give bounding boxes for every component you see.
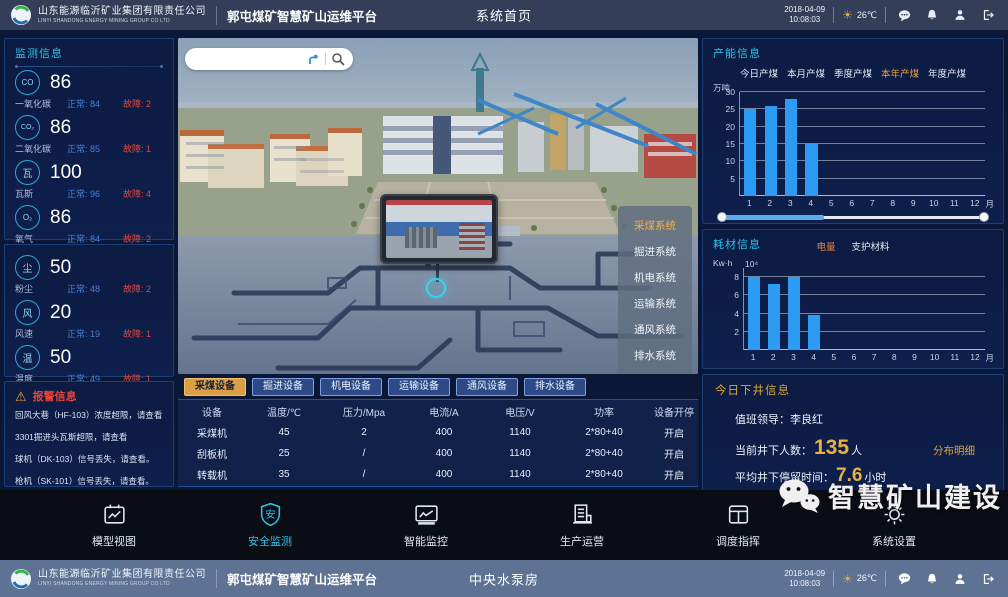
tab-year-coal[interactable]: 本年产煤 <box>881 66 919 80</box>
camera-preview-popup[interactable] <box>380 194 498 264</box>
platform-title: 郭屯煤矿智慧矿山运维平台 <box>216 569 377 588</box>
y-tick: 2 <box>734 327 739 337</box>
production-chart: 万吨 5 10 15 20 25 30 <box>713 92 993 223</box>
sensor-oxygen: O₂86 氧气正常: 84故障: 2 <box>15 203 163 248</box>
cell: 45 <box>246 427 322 438</box>
dust-icon: 尘 <box>15 255 40 280</box>
bar-series <box>740 92 985 196</box>
underground-count-line: 当前井下人数： 135 人 分布明细 <box>715 436 991 460</box>
sensor-normal: 正常: 84 <box>67 97 123 110</box>
time-text: 10:08:03 <box>784 15 825 25</box>
table-row[interactable]: 采煤机45240011402*80+40开启 <box>178 422 698 443</box>
bottom-info-bar: 山东能源临沂矿业集团有限责任公司 LINYI SHANDONG ENERGY M… <box>0 560 1008 597</box>
chart-zoom-slider[interactable] <box>717 212 989 223</box>
sensor-value: 86 <box>50 72 71 94</box>
table-row[interactable]: 刮板机25/40011402*80+40开启 <box>178 443 698 464</box>
sensor-normal: 正常: 96 <box>67 187 123 200</box>
menu-item-electromechanical-system[interactable]: 机电系统 <box>618 265 692 291</box>
company-name: 山东能源临沂矿业集团有限责任公司 <box>38 570 206 580</box>
company-logo-icon <box>10 4 32 26</box>
bell-icon[interactable] <box>922 571 942 587</box>
menu-item-tunneling-system[interactable]: 掘进系统 <box>618 239 692 265</box>
alarm-panel: ⚠ 报警信息 回风大巷（HF-103）浓度超限，请查看 3301掘进头瓦斯超限，… <box>4 381 174 487</box>
date-text: 2018-04-09 <box>784 569 825 579</box>
sensor-fault: 故障: 4 <box>123 187 151 200</box>
equipment-tabs: 采煤设备 掘进设备 机电设备 运输设备 通风设备 排水设备 <box>178 378 698 396</box>
legend-support-material[interactable]: 支护材料 <box>852 239 890 253</box>
temperature-icon: 温 <box>15 345 40 370</box>
oxygen-icon: O₂ <box>15 205 40 230</box>
nav-dispatch-command[interactable]: 调度指挥 <box>696 501 780 549</box>
tab-transport-equipment[interactable]: 运输设备 <box>388 378 450 396</box>
left-sidebar: 监测信息 CO86 一氧化碳正常: 84故障: 2 CO₂86 二氧化碳正常: … <box>4 38 174 487</box>
sun-icon: ☀ <box>842 9 853 21</box>
sensor-fault: 故障: 2 <box>123 97 151 110</box>
cell: 25 <box>246 448 322 459</box>
bar-month-4 <box>808 315 820 350</box>
platform-title: 郭屯煤矿智慧矿山运维平台 <box>216 6 377 25</box>
x-axis-ticks: 123456789101112 月 <box>743 352 985 362</box>
company-block: 山东能源临沂矿业集团有限责任公司 LINYI SHANDONG ENERGY M… <box>38 570 206 587</box>
company-logo-icon <box>10 568 32 590</box>
menu-item-transport-system[interactable]: 运输系统 <box>618 291 692 317</box>
company-block: 山东能源临沂矿业集团有限责任公司 LINYI SHANDONG ENERGY M… <box>38 7 206 24</box>
time-text: 10:08:03 <box>784 579 825 589</box>
wechat-icon <box>777 477 821 515</box>
monitoring-title: 监测信息 <box>15 45 163 61</box>
search-input[interactable] <box>193 53 301 66</box>
sensor-gas: 瓦100 瓦斯正常: 96故障: 4 <box>15 158 163 203</box>
temperature-text: 26℃ <box>857 10 877 21</box>
x-axis-ticks: 123456789101112 月 <box>739 198 985 208</box>
pump-room-photo <box>386 200 492 258</box>
tab-month-coal[interactable]: 本月产煤 <box>787 66 825 80</box>
cell: / <box>322 469 406 480</box>
alarm-item[interactable]: 回风大巷（HF-103）浓度超限，请查看 <box>15 404 163 426</box>
page-title: 系统首页 <box>476 6 532 25</box>
weather-widget: ☀ 26℃ <box>842 573 877 585</box>
sensor-normal: 正常: 48 <box>67 282 123 295</box>
menu-item-coal-mining-system[interactable]: 采煤系统 <box>618 213 692 239</box>
sensor-dust: 尘50 粉尘正常: 48故障: 2 <box>15 253 163 298</box>
divider <box>885 7 886 23</box>
tab-today-coal[interactable]: 今日产煤 <box>740 66 778 80</box>
nav-model-view[interactable]: 模型视图 <box>72 501 156 549</box>
cell: 转载机 <box>178 467 246 482</box>
magnifier-icon[interactable] <box>331 52 345 66</box>
header-right: 2018-04-09 10:08:03 ☀ 26℃ <box>784 5 998 25</box>
consumables-chart: Kw·h 10⁴ 2 4 6 8 <box>713 268 993 362</box>
bar-month-1 <box>744 109 756 196</box>
message-icon[interactable] <box>894 7 914 23</box>
footer-right: 2018-04-09 10:08:03 ☀ 26℃ <box>784 569 998 589</box>
gas-icon: 瓦 <box>15 160 40 185</box>
bar-month-4 <box>805 144 817 196</box>
cell: 2*80+40 <box>558 469 650 480</box>
company-name-en: LINYI SHANDONG ENERGY MINING GROUP CO LT… <box>38 19 206 24</box>
center-column: 采煤系统 掘进系统 机电系统 运输系统 通风系统 排水系统 采煤设 <box>178 38 698 487</box>
current-location-title: 中央水泵房 <box>469 569 539 588</box>
tab-tunneling-equipment[interactable]: 掘进设备 <box>252 378 314 396</box>
sensor-value: 100 <box>50 162 82 184</box>
sensor-wind-speed: 风20 风速正常: 19故障: 1 <box>15 298 163 343</box>
dispatch-command-icon <box>725 501 752 528</box>
col-header: 电流/A <box>406 404 482 419</box>
logout-icon[interactable] <box>978 7 998 23</box>
y-tick: 15 <box>726 139 735 149</box>
divider <box>885 571 886 587</box>
logout-icon[interactable] <box>978 571 998 587</box>
y-tick: 25 <box>726 104 735 114</box>
tab-annual-coal[interactable]: 年度产煤 <box>928 66 966 80</box>
divider <box>325 53 326 65</box>
warning-triangle-icon: ⚠ <box>15 390 27 403</box>
svg-text:安: 安 <box>265 508 275 521</box>
right-sidebar: 产能信息 今日产煤 本月产煤 季度产煤 本年产煤 年度产煤 万吨 <box>702 38 1004 487</box>
col-header: 功率 <box>558 404 650 419</box>
y-tick: 8 <box>734 272 739 282</box>
cell: 开启 <box>650 467 698 482</box>
sensor-label: 粉尘 <box>15 282 67 295</box>
sensor-value: 50 <box>50 257 71 279</box>
production-operation-icon <box>569 501 596 528</box>
table-header-row: 设备 温度/℃ 压力/Mpa 电流/A 电压/V 功率 设备开停 <box>178 400 698 422</box>
sensor-label: 风速 <box>15 327 67 340</box>
sensor-label: 一氧化碳 <box>15 97 67 110</box>
sensor-fault: 故障: 1 <box>123 327 151 340</box>
cell: 开启 <box>650 446 698 461</box>
consumables-legend: 电量 支护材料 <box>703 239 1003 253</box>
duty-leader-label: 值班领导： <box>735 411 790 427</box>
col-header: 设备开停 <box>650 404 698 419</box>
tab-drainage-equipment[interactable]: 排水设备 <box>524 378 586 396</box>
cell: 开启 <box>650 425 698 440</box>
alarm-item[interactable]: 球机（DK-103）信号丢失，请查看。 <box>15 448 163 470</box>
y-tick: 4 <box>734 309 739 319</box>
col-header: 压力/Mpa <box>322 404 406 419</box>
cell: 400 <box>406 427 482 438</box>
sensor-value: 20 <box>50 302 71 324</box>
cell: 2*80+40 <box>558 427 650 438</box>
table-row[interactable]: 转载机35/40011402*80+40开启 <box>178 464 698 485</box>
cell: 采煤机 <box>178 425 246 440</box>
sensor-fault: 故障: 2 <box>123 282 151 295</box>
underground-title: 今日下井信息 <box>715 382 991 398</box>
cell: 400 <box>406 469 482 480</box>
nav-safety-monitoring[interactable]: 安 安全监测 <box>228 501 312 549</box>
company-name: 山东能源临沂矿业集团有限责任公司 <box>38 7 206 17</box>
bar-month-3 <box>788 277 800 350</box>
scene-searchbox <box>185 48 353 70</box>
cell: / <box>322 448 406 459</box>
datetime: 2018-04-09 10:08:03 <box>784 5 825 25</box>
sensor-normal: 正常: 85 <box>67 142 123 155</box>
nav-label: 安全监测 <box>248 533 292 549</box>
divider <box>833 571 834 587</box>
nav-label: 智能监控 <box>404 533 448 549</box>
top-header: 山东能源临沂矿业集团有限责任公司 LINYI SHANDONG ENERGY M… <box>0 0 1008 30</box>
y-tick: 30 <box>726 87 735 97</box>
nav-production-operation[interactable]: 生产运营 <box>540 501 624 549</box>
monitoring-panel: 监测信息 CO86 一氧化碳正常: 84故障: 2 CO₂86 二氧化碳正常: … <box>4 38 174 240</box>
systems-menu: 采煤系统 掘进系统 机电系统 运输系统 通风系统 排水系统 <box>618 206 692 374</box>
tab-quarter-coal[interactable]: 季度产煤 <box>834 66 872 80</box>
tab-ventilation-equipment[interactable]: 通风设备 <box>456 378 518 396</box>
slider-handle-right[interactable] <box>979 212 989 222</box>
x-axis-unit: 月 <box>985 352 994 364</box>
production-panel: 产能信息 今日产煤 本月产煤 季度产煤 本年产煤 年度产煤 万吨 <box>702 38 1004 224</box>
sensor-label: 瓦斯 <box>15 187 67 200</box>
col-header: 温度/℃ <box>246 404 322 419</box>
y-tick: 20 <box>726 122 735 132</box>
col-header: 电压/V <box>482 404 558 419</box>
duty-leader-name: 李良红 <box>790 411 823 427</box>
col-header: 设备 <box>178 404 246 419</box>
x-axis-unit: 月 <box>985 198 994 210</box>
cell: 400 <box>406 448 482 459</box>
sensor-value: 50 <box>50 347 71 369</box>
mine-3d-scene[interactable]: 采煤系统 掘进系统 机电系统 运输系统 通风系统 排水系统 <box>178 38 698 374</box>
production-title: 产能信息 <box>713 45 993 61</box>
nav-smart-surveillance[interactable]: 智能监控 <box>384 501 468 549</box>
main-area: 监测信息 CO86 一氧化碳正常: 84故障: 2 CO₂86 二氧化碳正常: … <box>0 30 1008 490</box>
alarm-item[interactable]: 枪机（SK-101）信号丢失，请查看。 <box>15 470 163 487</box>
count-label: 当前井下人数： <box>735 442 812 458</box>
locate-icon[interactable] <box>306 52 320 66</box>
carbon-dioxide-icon: CO₂ <box>15 115 40 140</box>
alarm-title: 报警信息 <box>33 388 77 404</box>
consumables-panel: 耗材信息 电量 支护材料 Kw·h 10⁴ 2 4 <box>702 229 1004 369</box>
divider <box>833 7 834 23</box>
nav-label: 调度指挥 <box>716 533 760 549</box>
production-tabs: 今日产煤 本月产煤 季度产煤 本年产煤 年度产煤 <box>713 66 993 80</box>
equipment-table: 设备 温度/℃ 压力/Mpa 电流/A 电压/V 功率 设备开停 采煤机4524… <box>178 399 698 487</box>
bar-month-3 <box>785 99 797 196</box>
monitoring-panel-2: 尘50 粉尘正常: 48故障: 2 风20 风速正常: 19故障: 1 温50 … <box>4 244 174 377</box>
safety-monitor-icon: 安 <box>257 501 284 528</box>
nav-label: 系统设置 <box>872 533 916 549</box>
cell: 35 <box>246 469 322 480</box>
bar-month-2 <box>765 106 777 196</box>
sun-icon: ☀ <box>842 573 853 585</box>
sensor-normal: 正常: 19 <box>67 327 123 340</box>
wind-icon: 风 <box>15 300 40 325</box>
cell: 1140 <box>482 469 558 480</box>
y-axis-unit: Kw·h <box>713 258 732 268</box>
cell: 1140 <box>482 427 558 438</box>
tab-coal-mining-equipment[interactable]: 采煤设备 <box>184 378 246 396</box>
weather-widget: ☀ 26℃ <box>842 9 877 21</box>
title-separator <box>15 66 163 67</box>
menu-item-ventilation-system[interactable]: 通风系统 <box>618 317 692 343</box>
bar-month-2 <box>768 284 780 350</box>
slider-selection <box>721 215 824 220</box>
nav-label: 生产运营 <box>560 533 604 549</box>
tab-electromechanical-equipment[interactable]: 机电设备 <box>320 378 382 396</box>
menu-item-drainage-system[interactable]: 排水系统 <box>618 343 692 369</box>
sensor-carbon-monoxide: CO86 一氧化碳正常: 84故障: 2 <box>15 68 163 113</box>
pump-machines <box>405 227 437 248</box>
bell-icon[interactable] <box>922 7 942 23</box>
app-root: 山东能源临沂矿业集团有限责任公司 LINYI SHANDONG ENERGY M… <box>0 0 1008 597</box>
sensor-fault: 故障: 1 <box>123 142 151 155</box>
alarm-item[interactable]: 3301掘进头瓦斯超限，请查看 <box>15 426 163 448</box>
company-name-en: LINYI SHANDONG ENERGY MINING GROUP CO LT… <box>38 582 206 587</box>
cell: 1140 <box>482 448 558 459</box>
nav-label: 模型视图 <box>92 533 136 549</box>
message-icon[interactable] <box>894 571 914 587</box>
temperature-text: 26℃ <box>857 573 877 584</box>
y-tick: 5 <box>730 174 735 184</box>
distribution-detail-link[interactable]: 分布明细 <box>933 443 975 458</box>
sensor-value: 86 <box>50 117 71 139</box>
slider-handle-left[interactable] <box>717 212 727 222</box>
smart-surveillance-icon <box>413 501 440 528</box>
cell: 2 <box>322 427 406 438</box>
datetime: 2018-04-09 10:08:03 <box>784 569 825 589</box>
sensor-label: 二氧化碳 <box>15 142 67 155</box>
location-marker-icon[interactable] <box>426 278 446 298</box>
bar-month-1 <box>748 277 760 350</box>
cell: 刮板机 <box>178 446 246 461</box>
watermark: 智慧矿山建设 <box>777 476 1002 515</box>
model-view-icon <box>101 501 128 528</box>
cell: 2*80+40 <box>558 448 650 459</box>
legend-electricity[interactable]: 电量 <box>816 239 835 253</box>
duty-leader-line: 值班领导： 李良红 <box>715 411 991 427</box>
y-tick: 10 <box>726 156 735 166</box>
bar-series <box>744 268 985 350</box>
count-unit: 人 <box>851 442 862 458</box>
user-icon[interactable] <box>950 571 970 587</box>
y-tick: 6 <box>734 290 739 300</box>
date-text: 2018-04-09 <box>784 5 825 15</box>
sensor-value: 86 <box>50 207 71 229</box>
watermark-text: 智慧矿山建设 <box>828 476 1002 515</box>
carbon-monoxide-icon: CO <box>15 70 40 95</box>
count-value: 135 <box>814 436 849 460</box>
user-icon[interactable] <box>950 7 970 23</box>
pump-machines <box>459 223 484 250</box>
sensor-carbon-dioxide: CO₂86 二氧化碳正常: 85故障: 1 <box>15 113 163 158</box>
